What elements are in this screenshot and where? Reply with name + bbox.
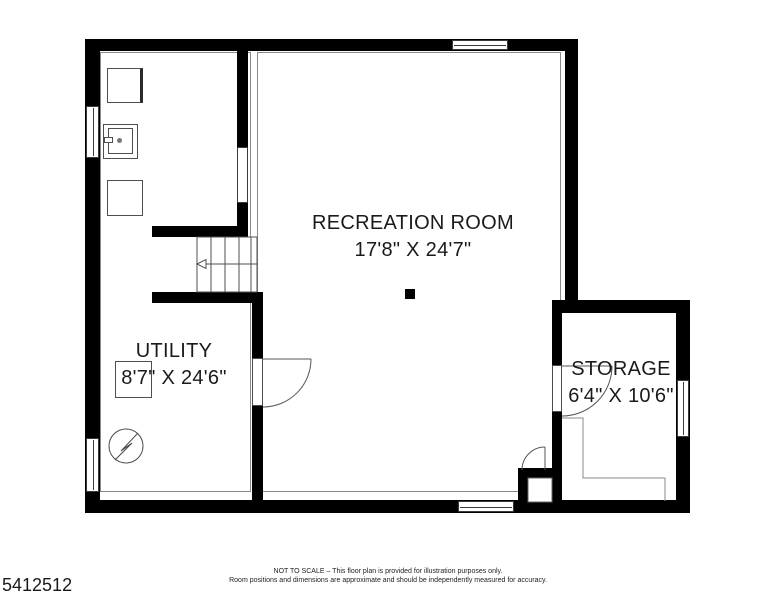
room-label-utility: UTILITY 8'7" X 24'6" — [98, 338, 250, 392]
sump-pump-symbol — [109, 429, 143, 463]
room-name: STORAGE — [546, 356, 696, 383]
listing-id: 5412512 — [2, 575, 72, 596]
staircase-symbol — [197, 237, 257, 292]
disclaimer-line-2: Room positions and dimensions are approx… — [88, 577, 688, 586]
room-name: RECREATION ROOM — [263, 210, 563, 237]
room-label-storage: STORAGE 6'4" X 10'6" — [546, 356, 696, 410]
door-swing-utility — [263, 359, 311, 407]
door-swing-access-hatch — [522, 447, 545, 470]
room-dimensions: 17'8" X 24'7" — [263, 237, 563, 264]
storage-step-outline — [562, 418, 665, 501]
room-name: UTILITY — [98, 338, 250, 365]
access-chase-box — [528, 478, 552, 502]
room-dimensions: 6'4" X 10'6" — [546, 383, 696, 410]
room-label-recreation: RECREATION ROOM 17'8" X 24'7" — [263, 210, 563, 264]
disclaimer-line-1: NOT TO SCALE – This floor plan is provid… — [88, 568, 688, 577]
room-dimensions: 8'7" X 24'6" — [98, 365, 250, 392]
disclaimer: NOT TO SCALE – This floor plan is provid… — [88, 568, 688, 585]
linework-overlay — [0, 0, 776, 600]
floor-plan: RECREATION ROOM 17'8" X 24'7" UTILITY 8'… — [0, 0, 776, 600]
